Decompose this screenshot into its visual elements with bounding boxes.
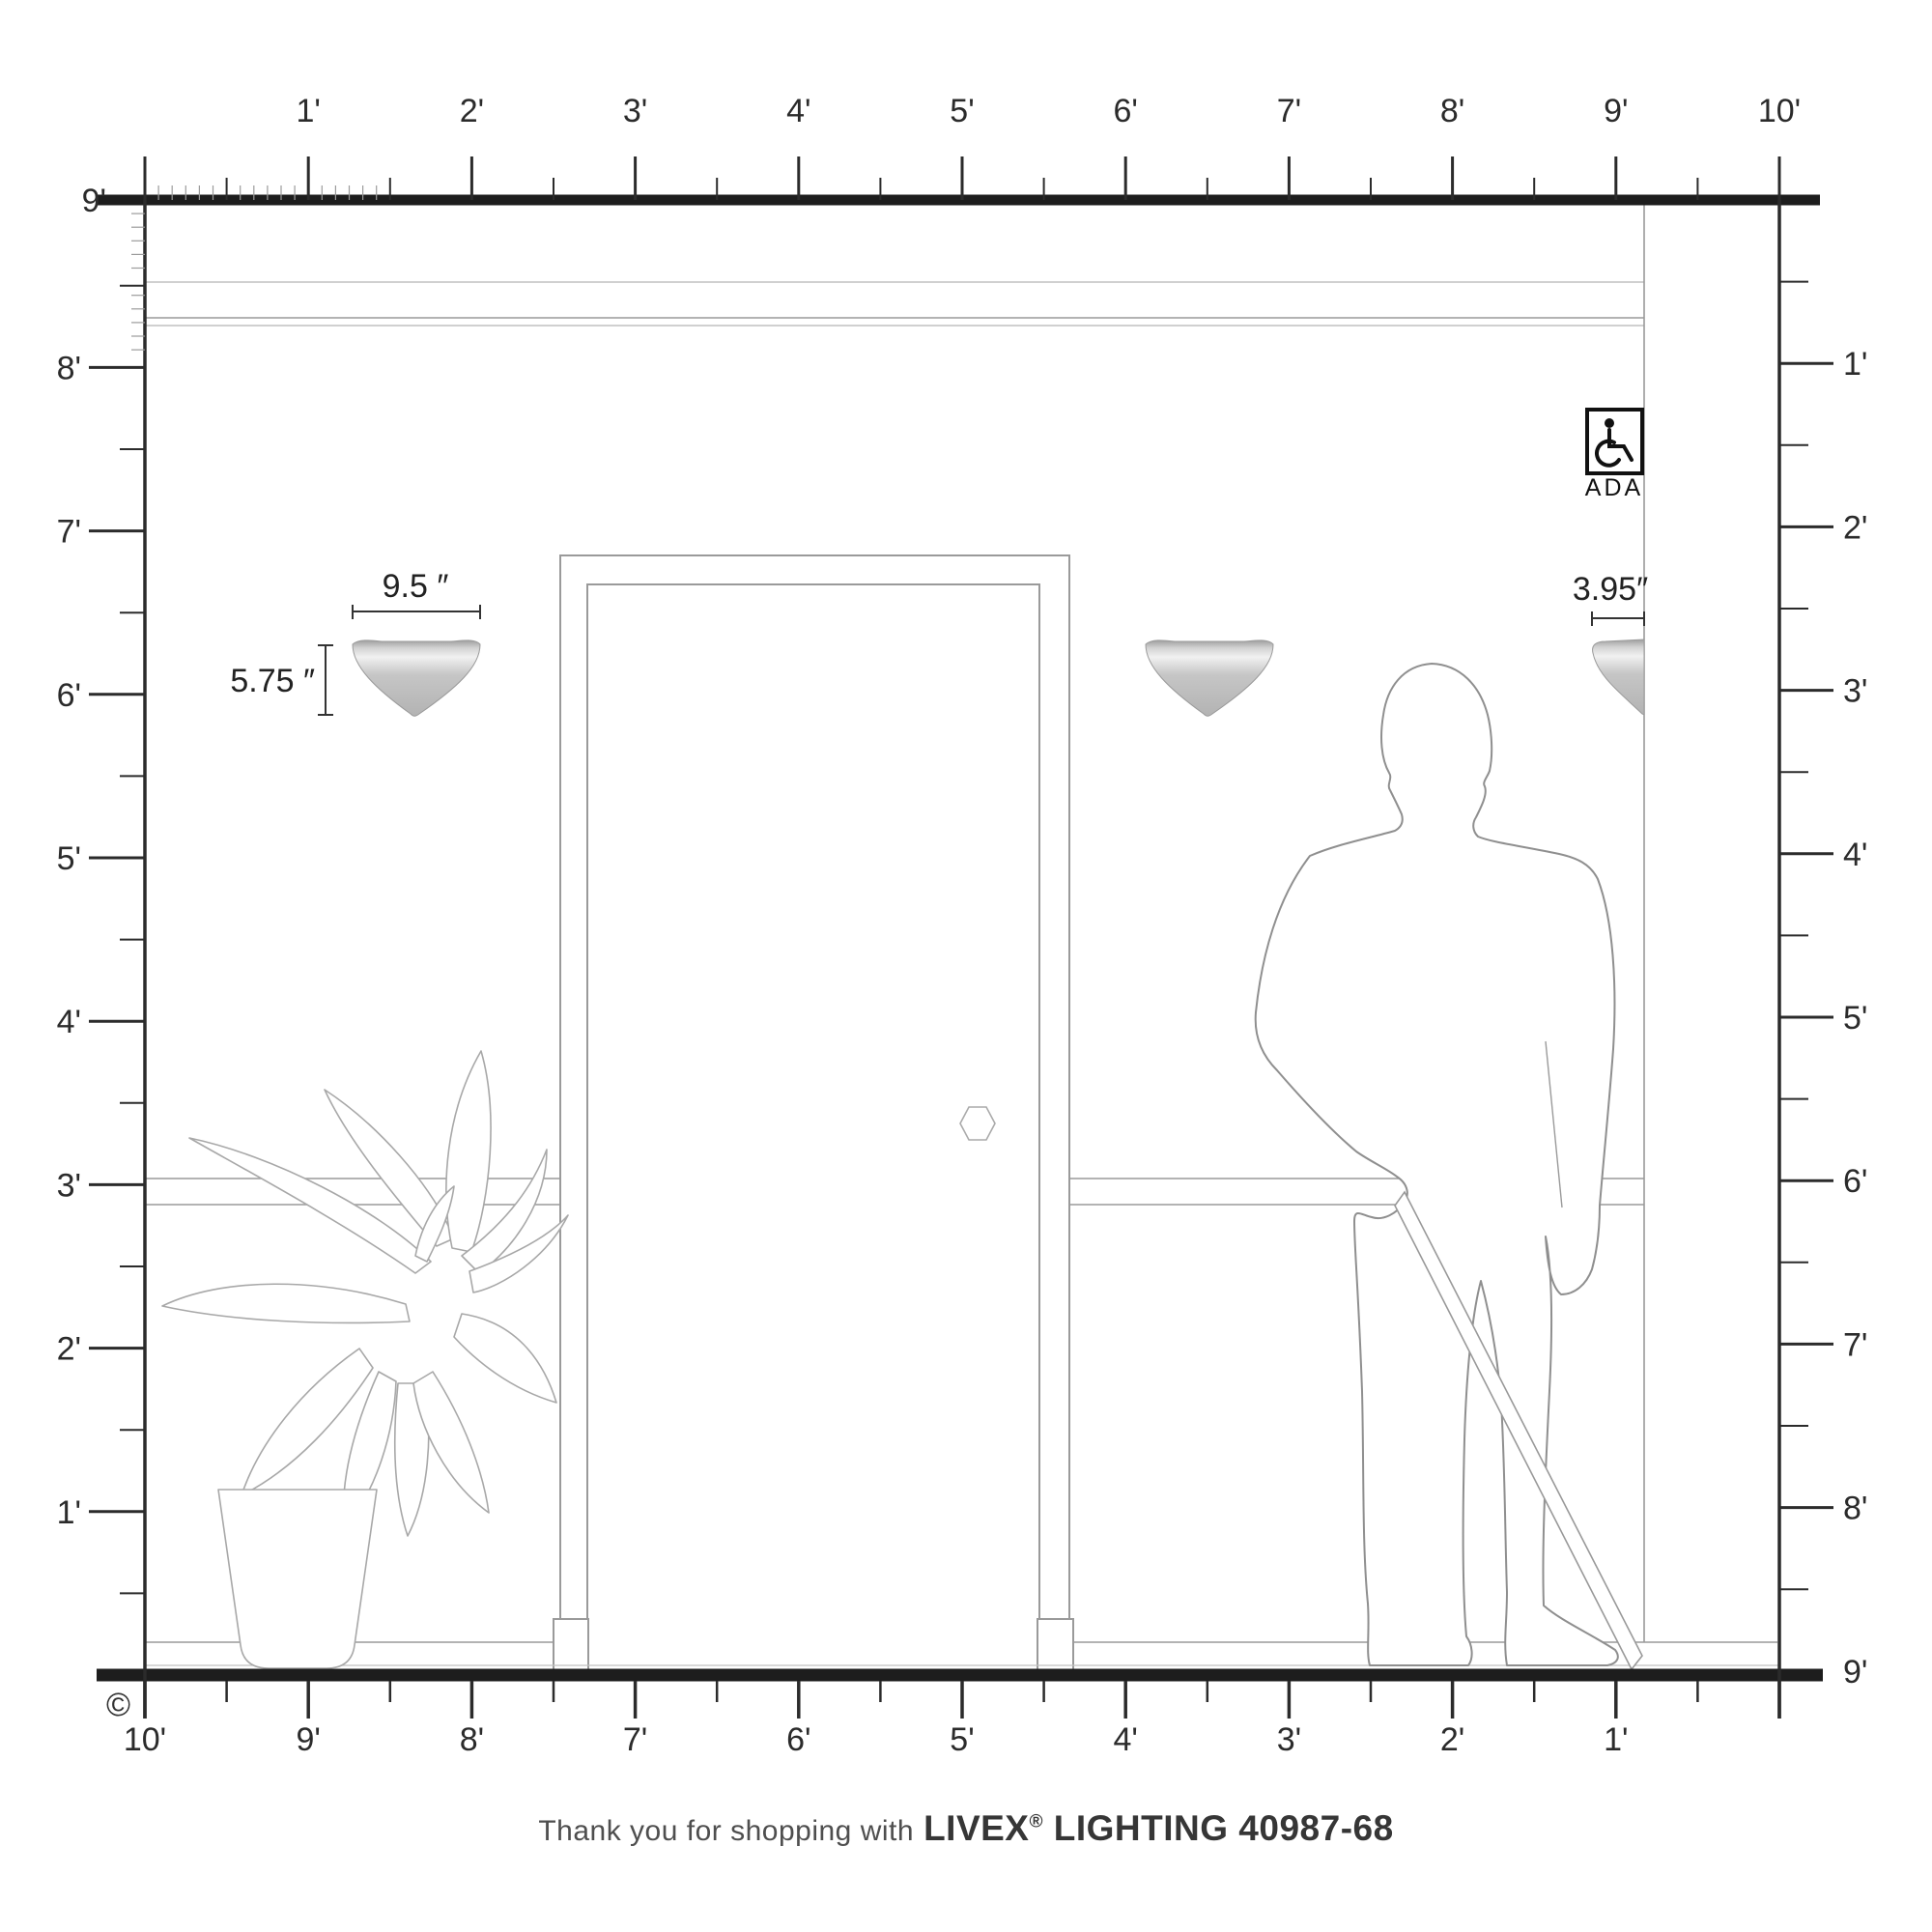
ruler-label: 9' xyxy=(1843,1654,1867,1690)
ruler-label: 3' xyxy=(1277,1721,1301,1758)
depth-dim-label: 3.95″ xyxy=(1573,571,1648,608)
copyright-symbol: © xyxy=(106,1687,130,1723)
sconce-side-right xyxy=(1593,639,1644,715)
ruler-label: 5' xyxy=(57,840,81,877)
product-number: LIGHTING 40987-68 xyxy=(1054,1808,1394,1848)
ruler-label: 7' xyxy=(1843,1326,1867,1363)
ruler-label: 1' xyxy=(57,1494,81,1531)
ruler-label: 7' xyxy=(57,514,81,551)
ruler-label: 1' xyxy=(296,93,320,129)
ruler-label: 3' xyxy=(623,93,647,129)
footer-message: Thank you for shopping with xyxy=(538,1815,914,1847)
ruler-label: 9' xyxy=(82,183,106,219)
ada-badge: ADA xyxy=(1585,410,1643,501)
footer: Thank you for shopping withLIVEX® LIGHTI… xyxy=(0,1808,1932,1849)
ruler-label: 7' xyxy=(1277,93,1301,129)
bottom-ruler: 10'9'8'7'6'5'4'3'2'1' xyxy=(124,1681,1779,1758)
plant-pot xyxy=(218,1490,377,1668)
ruler-label: 8' xyxy=(1440,93,1464,129)
ruler-label: 6' xyxy=(57,677,81,714)
ruler-label: 8' xyxy=(460,1721,484,1758)
plant-leaf xyxy=(454,1314,556,1403)
ruler-label: 4' xyxy=(57,1004,81,1040)
ruler-label: 10' xyxy=(124,1721,166,1758)
plant-leaf xyxy=(162,1284,410,1322)
ruler-label: 1' xyxy=(1604,1721,1628,1758)
door-plinth-left xyxy=(554,1619,588,1672)
ruler-label: 3' xyxy=(57,1167,81,1204)
ruler-label: 3' xyxy=(1843,673,1867,710)
ruler-label: 2' xyxy=(57,1331,81,1368)
ruler-label: 8' xyxy=(1843,1491,1867,1527)
registered-mark: ® xyxy=(1029,1812,1043,1833)
ruler-label: 2' xyxy=(1440,1721,1464,1758)
ruler-label: 6' xyxy=(1843,1163,1867,1200)
ruler-label: 4' xyxy=(786,93,810,129)
height-dim-label: 5.75 ″ xyxy=(230,663,315,699)
ruler-label: 9' xyxy=(1604,93,1628,129)
ruler-label: 1' xyxy=(1843,346,1867,383)
ruler-label: 7' xyxy=(623,1721,647,1758)
ada-label: ADA xyxy=(1585,474,1643,501)
top-ruler: 1'2'3'4'5'6'7'8'9'10' xyxy=(145,93,1801,200)
ruler-label: 8' xyxy=(57,350,81,386)
ruler-label: 2' xyxy=(460,93,484,129)
ruler-label: 10' xyxy=(1758,93,1801,129)
width-dim-label: 9.5 ″ xyxy=(383,568,449,605)
brand-name: LIVEX® LIGHTING 40987-68 xyxy=(923,1808,1394,1848)
ruler-label: 5' xyxy=(950,1721,974,1758)
elevation-diagram: 9.5 ″ 5.75 ″ 3.95″ ADA 1'2'3'4'5'6'7'8'9… xyxy=(0,0,1932,1932)
brand-word: LIVEX xyxy=(923,1808,1029,1848)
plant-leaf xyxy=(446,1051,491,1252)
ruler-label: 6' xyxy=(786,1721,810,1758)
sconce-front-left xyxy=(353,640,480,716)
person-silhouette xyxy=(1256,664,1642,1669)
door-plinth-right xyxy=(1037,1619,1073,1672)
ruler-label: 5' xyxy=(950,93,974,129)
potted-plant xyxy=(162,1051,568,1668)
right-ruler: 1'2'3'4'5'6'7'8'9' xyxy=(1779,282,1867,1690)
door-knob xyxy=(960,1107,995,1140)
ruler-label: 9' xyxy=(296,1721,320,1758)
sconce-front-middle xyxy=(1146,640,1273,716)
ruler-label: 2' xyxy=(1843,509,1867,546)
door xyxy=(554,555,1073,1673)
ruler-label: 4' xyxy=(1113,1721,1137,1758)
left-ruler: 9'1'2'3'4'5'6'7'8' xyxy=(57,183,145,1593)
ruler-label: 6' xyxy=(1113,93,1137,129)
ruler-label: 4' xyxy=(1843,837,1867,873)
ruler-label: 5' xyxy=(1843,1000,1867,1037)
